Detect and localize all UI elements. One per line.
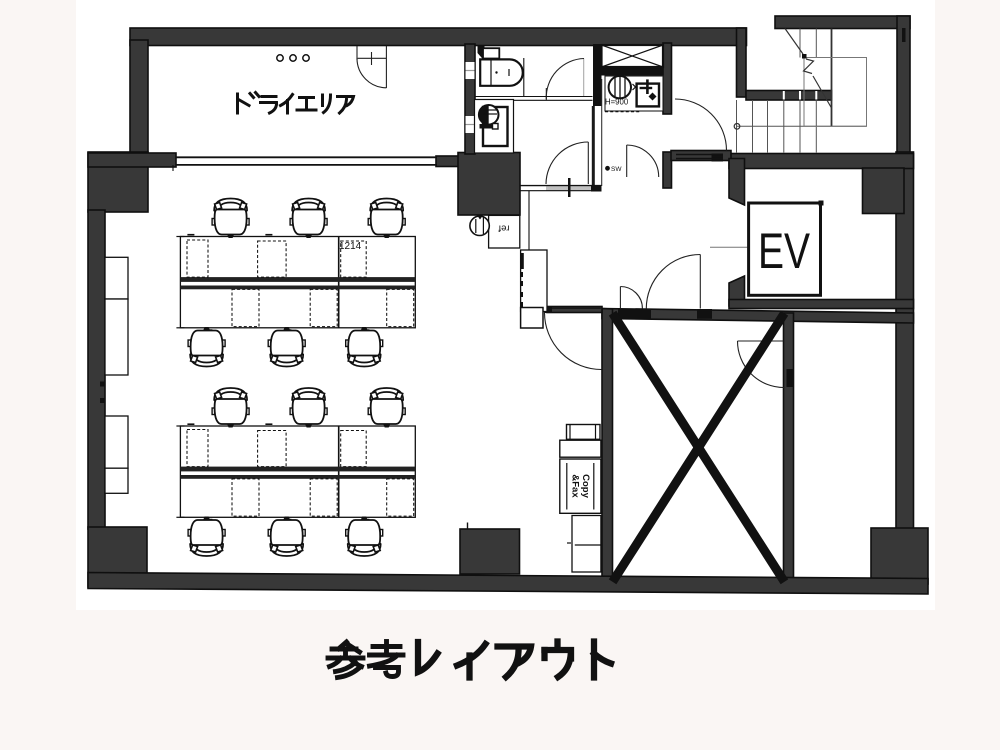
svg-text:1214: 1214	[339, 241, 362, 252]
svg-text:ref: ref	[498, 223, 509, 234]
svg-text:H=900: H=900	[605, 98, 629, 107]
svg-text:EV: EV	[758, 223, 811, 279]
svg-text:&Fax: &Fax	[570, 474, 581, 498]
svg-text:SW: SW	[611, 166, 622, 173]
svg-text:Copy: Copy	[580, 474, 591, 498]
